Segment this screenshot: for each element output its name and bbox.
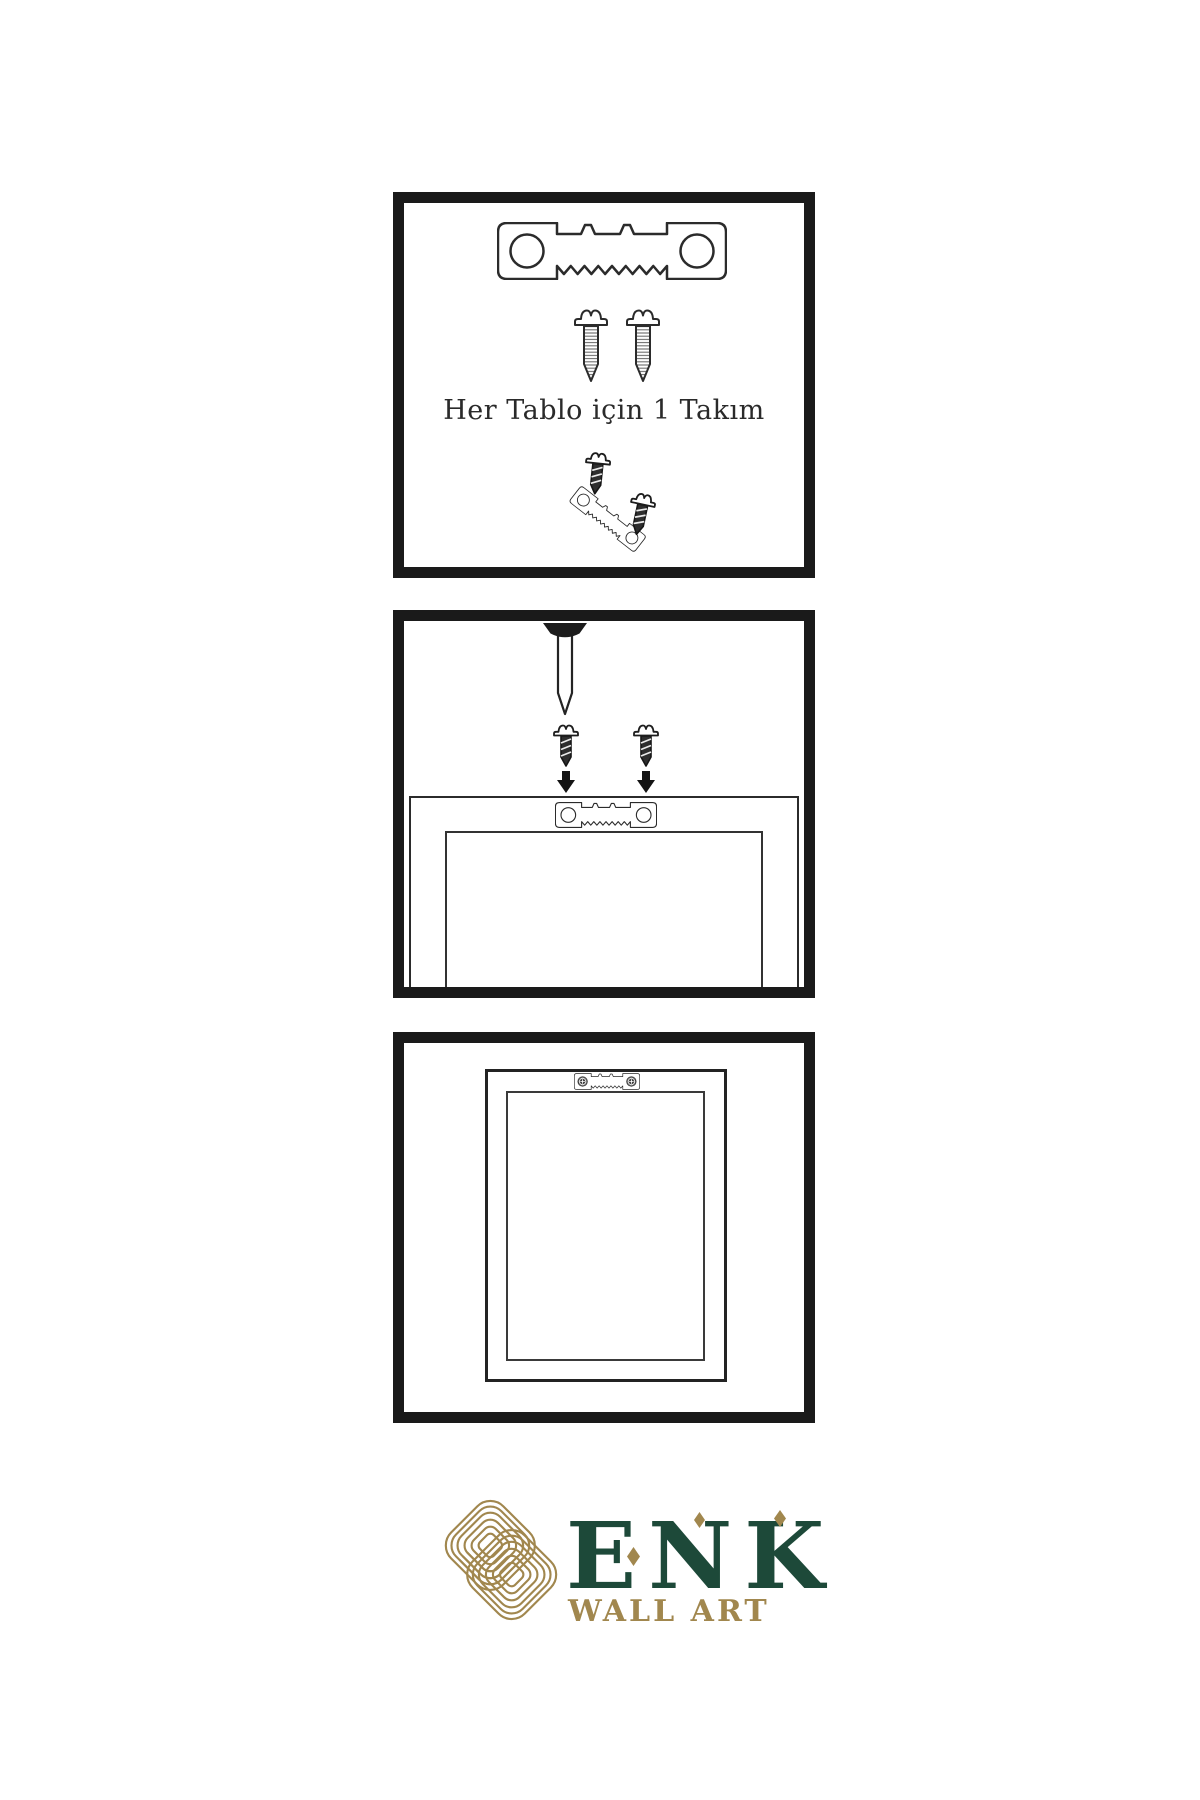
down-arrow-icon [637, 771, 655, 793]
brand-subtitle: WALL ART [568, 1597, 770, 1627]
screw-icon [632, 722, 660, 768]
screw-icon [552, 722, 580, 768]
frame-front-inner-edge [506, 1091, 705, 1361]
step-3-hung-frame-panel [393, 1032, 815, 1423]
step-2-mounting-panel [393, 610, 815, 998]
sawtooth-hanger-icon [555, 802, 657, 828]
step-1-hardware-kit-panel: Her Tablo için 1 Takım [393, 192, 815, 578]
screw-icon [622, 488, 659, 539]
nail-icon [542, 620, 588, 718]
screw-icon [581, 449, 614, 498]
mounted-sawtooth-hanger-icon [574, 1073, 640, 1090]
brand-wordmark: ENK [566, 1520, 836, 1594]
kit-caption: Her Tablo için 1 Takım [404, 395, 804, 426]
screw-icon [625, 306, 661, 384]
down-arrow-icon [557, 771, 575, 793]
interlocking-knot-icon [436, 1488, 566, 1632]
screw-icon [573, 306, 609, 384]
instruction-sheet: Her Tablo için 1 Takım [0, 0, 1200, 1800]
screw-into-hanger-icon [569, 449, 709, 564]
sawtooth-hanger-icon [497, 222, 727, 280]
frame-back-inner-edge [445, 831, 763, 998]
